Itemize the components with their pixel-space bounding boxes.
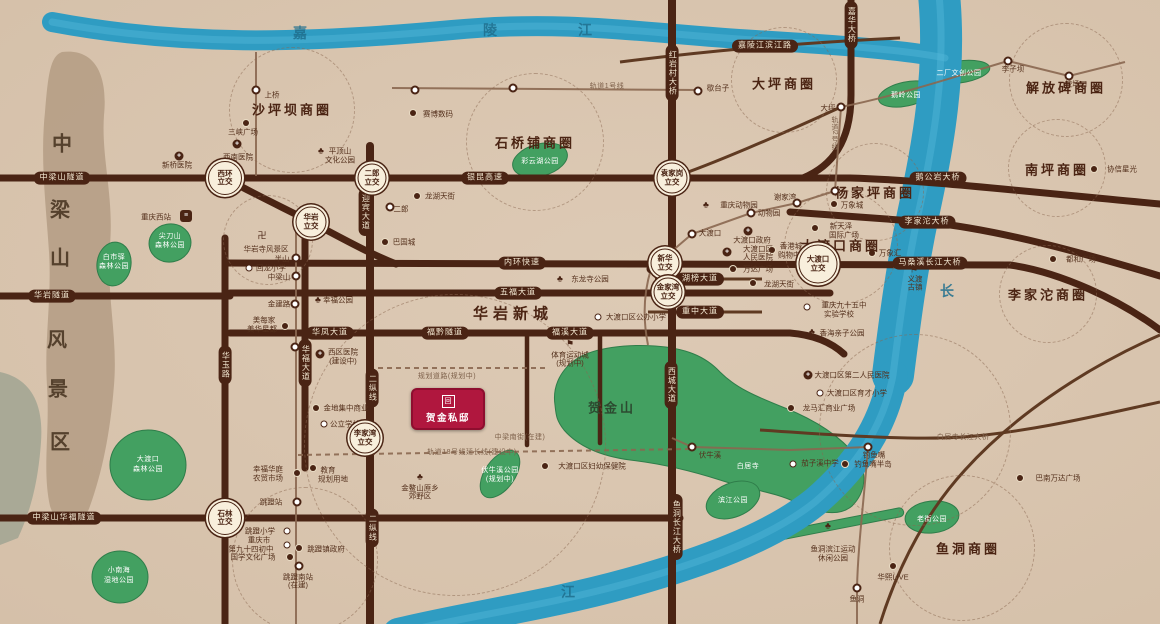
park-label: 鹅岭公园 [891,90,921,100]
business-circle-label: 李家沱商圈 [1008,285,1088,304]
interchange-name-line: 立交 [218,518,233,526]
park-label: 森林公园 [99,261,129,271]
metro-station [252,86,261,95]
road-name-pill: 华凤大道 [306,327,354,340]
poi-label: 大渡口区第二人民医院 [815,370,890,381]
poi-label: 休闲公园 [818,553,848,564]
road-annotation: 规划道路(规划中) [418,371,476,381]
river-label-char: 江 [561,582,575,602]
poi-label: 文化公园 [325,155,355,166]
poi-label: 郊野区 [409,491,432,502]
metro-station-label: 鱼洞 [850,594,865,605]
ring-icon [284,528,291,535]
dot-icon [1091,166,1097,172]
cross-icon: + [233,140,242,149]
road-name-pill: 二纵线 [366,369,379,408]
cross-icon: + [316,350,325,359]
poi-label: 国学文化广场 [231,552,276,563]
road-name-pill: 华岩隧道 [28,290,76,303]
poi-label: 规划用地 [318,474,348,485]
dot-icon [788,405,794,411]
metro-station-label: 歇台子 [707,83,730,94]
temple-icon: 卍 [257,232,266,241]
interchange-name-line: 立交 [218,178,233,186]
metro-station-label: 大坪 [821,103,836,114]
poi-label: 美华星都 [247,324,277,335]
interchange-badge: 新华立交 [651,249,680,278]
road-name-pill: 福黔隧道 [421,327,469,340]
metro-station-label: 大渡口 [699,228,722,239]
metro-station [291,343,300,352]
interchange-name-line: 立交 [658,263,673,271]
poi-label: 大渡口区公办小学 [606,312,666,323]
poi-label: 实验学校 [824,309,854,320]
ring-icon [817,390,824,397]
metro-station [1004,57,1013,66]
poi-label: 回龙小学 [256,263,286,274]
road-name-pill: 二纵线 [366,509,379,548]
poi-label: (规划中) [556,358,584,369]
road-name-pill: 重中大道 [676,306,724,319]
road-name-pill: 鹅公岩大桥 [910,172,967,185]
road-name-pill: 银昆高速 [461,172,509,185]
dot-icon [730,266,736,272]
road-name-pill: 湖榜大道 [676,273,724,286]
train-icon: ≡ [180,210,192,222]
interchange-name-line: 立交 [304,222,319,230]
poi-label: 巴南万达广场 [1036,473,1081,484]
project-logo-icon: 回 [442,395,455,408]
poi-label: 协信星光 [1107,164,1137,175]
tree-icon: ♣ [825,522,831,531]
cross-icon: + [723,248,732,257]
interchange-badge: 大渡口立交 [799,245,838,284]
poi-label: 龙湖天街 [764,279,794,290]
interchange-badge: 金家湾立交 [654,278,683,307]
dot-icon [243,120,249,126]
dot-icon [310,465,316,471]
interchange-badge: 李家湾立交 [350,423,381,454]
road-name-pill: 福溪大道 [546,327,594,340]
dot-icon [750,280,756,286]
road-name-pill: 中梁山华福隧道 [27,512,102,525]
poi-label: 茄子溪中学 [801,458,839,469]
poi-label: 古镇 [908,282,923,293]
poi-label: 龙湖天街 [425,191,455,202]
road-name-pill: 五福大道 [494,287,542,300]
ring-icon [595,314,602,321]
road-name-pill: 鱼洞长江大桥 [670,494,683,560]
metro-station [793,199,802,208]
dot-icon [542,463,548,469]
business-circle-label: 鱼洞商圈 [936,539,1000,558]
area-label: 华岩新城 [473,303,553,324]
park-label: 小南海 [108,565,131,575]
poi-label: 巴国城 [393,237,416,248]
metro-station [295,562,304,571]
poi-label: 赛博数码 [423,109,453,120]
mountain-label-char: 风 [47,324,67,353]
poi-label: 三峡广场 [228,127,258,138]
park-label: 老街公园 [917,514,947,524]
map-canvas: 沙坪坝商圈石桥铺商圈大坪商圈解放碑商圈南坪商圈杨家坪商圈大渡口商圈李家沱商圈鱼洞… [0,0,1160,624]
poi-label: 金地集中商业 [324,403,369,414]
metro-station [688,443,697,452]
metro-station-label: 伏牛溪 [699,450,722,461]
mountain-label-char: 梁 [50,194,70,223]
metro-station-label: 二郎 [394,204,409,215]
road-name-pill: 华福大道 [299,339,312,387]
metro-station [694,87,703,96]
interchange-badge: 西环立交 [208,161,242,195]
dot-icon [382,239,388,245]
road-annotation: 白居寺长江大桥 [937,432,990,442]
river-label-char: 长 [940,281,954,301]
flag-icon: ⚑ [566,340,574,349]
road-name-pill: 马桑溪长江大桥 [893,257,968,270]
park-label: 二厂文创公园 [937,68,982,78]
road-name-pill: 西城大道 [665,361,678,409]
road-name-pill: 内环快速 [498,257,546,270]
mountain-label-char: 山 [50,242,70,271]
river-label-char: 嘉 [293,23,307,43]
ring-icon [284,542,291,549]
poi-label: 幸福公园 [323,295,353,306]
interchange-badge: 石林立交 [208,501,242,535]
mountain-label-char: 景 [48,373,68,402]
road-name-pill: 李家沱大桥 [899,216,956,229]
metro-station [837,103,846,112]
road-name-pill: 红岩村大桥 [666,45,679,102]
poi-label: 跳蹬镇政府 [307,544,345,555]
poi-label: 大渡口区妇幼保健院 [558,461,626,472]
poi-label: 龙马汇商业广场 [803,403,856,414]
mountain-label-char: 区 [50,426,70,455]
poi-label: 农贸市场 [253,473,283,484]
poi-label: 都和广场 [1066,254,1096,265]
metro-station [1065,72,1074,81]
road-name-pill: 嘉陵江滨江路 [732,40,798,53]
dot-icon [842,461,848,467]
metro-station [291,300,300,309]
poi-label: 东龙寺公园 [571,274,609,285]
dot-icon [287,554,293,560]
dot-icon [410,110,416,116]
ring-icon [321,421,328,428]
metro-station [386,203,395,212]
dot-icon [1017,475,1023,481]
mountain-label-char: 中 [52,128,72,157]
poi-label: 大渡口区育才小学 [827,388,887,399]
poi-label: 华岩寺风景区 [244,244,289,255]
dot-icon [282,323,288,329]
business-circle-label: 大坪商圈 [752,74,816,93]
poi-label: 新桥医院 [162,160,192,171]
business-circle-label: 杨家坪商圈 [835,183,915,202]
poi-label: 人民医院 [743,252,773,263]
park-label: 彩云湖公园 [521,156,559,166]
park-label: 湿地公园 [104,575,134,585]
dot-icon [294,470,300,476]
road-annotation: 中梁南街(在建) [495,432,546,442]
tree-icon: ♣ [703,201,709,210]
metro-station [509,84,518,93]
poi-label: 华熙LIVE [877,572,908,583]
project-name: 贺金私邸 [426,410,470,424]
tree-icon: ♣ [315,296,321,305]
interchange-name-line: 立交 [365,178,380,186]
interchange-name-line: 立交 [665,178,680,186]
park-label: (规划中) [486,474,514,484]
interchange-name-line: 立交 [358,438,373,446]
tree-icon: ♣ [318,147,324,156]
dot-icon [296,545,302,551]
river-label-char: 陵 [483,20,497,40]
park-label: 贺金山 [588,398,636,417]
interchange-name-line: 立交 [811,264,826,272]
tree-icon: ♣ [809,328,815,337]
metro-station [853,584,862,593]
metro-station-label: 李子坝 [1002,64,1025,75]
road-name-pill: 华玉路 [219,346,232,385]
metro-station [411,86,420,95]
dot-icon [313,405,319,411]
river-label-char: 江 [578,20,592,40]
poi-label: (建设中) [329,356,357,367]
metro-station-label: 金建路 [268,299,291,310]
metro-station [688,230,697,239]
dot-icon [890,563,896,569]
business-circle-label: 解放碑商圈 [1026,78,1106,97]
road-annotation: 轨道2号线 [829,116,839,150]
dot-icon [1050,256,1056,262]
interchange-badge: 二郎立交 [358,164,387,193]
poi-label: 钓鱼嘴半岛 [854,459,892,470]
project-marker: 回贺金私邸 [411,388,485,430]
road-name-pill: 迎宾大道 [359,188,372,236]
tree-icon: ♣ [557,275,563,284]
metro-station [292,272,301,281]
metro-station-label: (在建) [288,580,308,591]
interchange-name-line: 立交 [661,292,676,300]
metro-station-label: 动物园 [758,208,781,219]
park-label: 大渡口 [137,454,160,464]
ring-icon [246,265,253,272]
ring-icon [790,461,797,468]
road-name-pill: 中梁山隧道 [34,172,91,185]
business-circle-label: 沙坪坝商圈 [252,100,332,119]
poi-label: 重庆西站 [141,212,171,223]
metro-station [292,254,301,263]
road-annotation: 轨道1号线 [590,81,624,91]
metro-station [831,187,840,196]
metro-station [864,443,873,452]
poi-label: 香海亲子公园 [820,328,865,339]
park-label: 森林公园 [133,464,163,474]
interchange-badge: 华岩立交 [296,207,327,238]
metro-station [293,498,302,507]
park-label: 白居寺 [737,461,760,471]
park-label: 滨江公园 [718,495,748,505]
metro-station-label: 跳蹬站 [260,497,283,508]
tree-icon: ♣ [417,473,423,482]
dot-icon [414,193,420,199]
business-circle-label: 南坪商圈 [1025,160,1089,179]
cross-icon: + [804,371,813,380]
interchange-badge: 袁家岗立交 [657,163,688,194]
metro-station [747,209,756,218]
ring-icon [804,304,811,311]
road-name-pill: 嘉华大桥 [845,1,858,49]
business-circle-label: 石桥铺商圈 [495,133,575,152]
poi-label: 万达广场 [743,264,773,275]
dot-icon [812,225,818,231]
park-label: 森林公园 [155,240,185,250]
road-annotation: 轨道18号线延长线(建设中) [427,447,516,457]
dot-icon [831,201,837,207]
